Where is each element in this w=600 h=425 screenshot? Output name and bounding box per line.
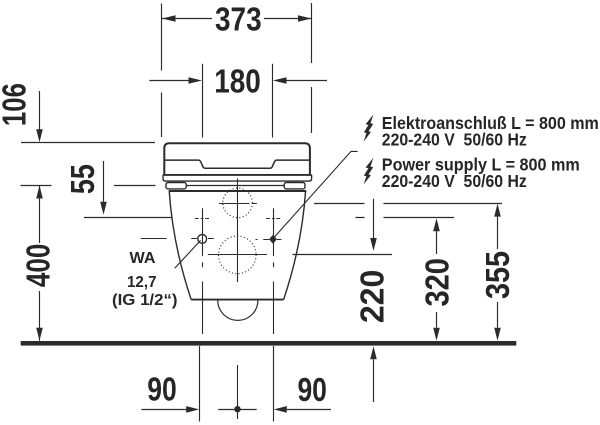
svg-text:106: 106: [0, 83, 33, 126]
svg-text:90: 90: [297, 371, 327, 408]
svg-text:373: 373: [215, 0, 262, 37]
svg-text:180: 180: [214, 63, 261, 100]
svg-text:220-240 V 50/60 Hz: 220-240 V 50/60 Hz: [382, 171, 527, 191]
svg-text:220-240 V 50/60 Hz: 220-240 V 50/60 Hz: [382, 129, 527, 149]
svg-text:400: 400: [19, 244, 56, 288]
svg-text:90: 90: [147, 371, 177, 408]
svg-text:WA: WA: [130, 250, 156, 267]
svg-text:355: 355: [479, 251, 516, 299]
svg-text:320: 320: [418, 258, 455, 307]
svg-text:(IG 1/2“): (IG 1/2“): [112, 292, 178, 309]
svg-text:12,7: 12,7: [127, 274, 157, 291]
svg-text:55: 55: [64, 164, 101, 194]
svg-text:220: 220: [354, 270, 391, 324]
